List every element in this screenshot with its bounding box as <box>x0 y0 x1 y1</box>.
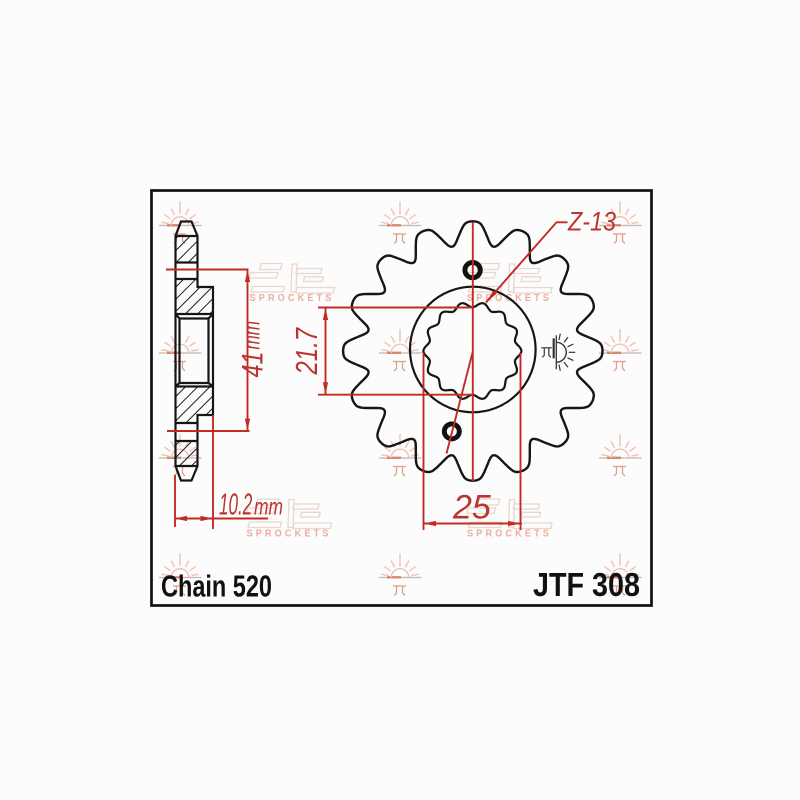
svg-text:JTF 308: JTF 308 <box>533 566 640 603</box>
svg-text:25: 25 <box>452 489 491 527</box>
svg-text:SPROCKETS: SPROCKETS <box>250 293 335 304</box>
svg-text:41: 41 <box>237 352 270 378</box>
svg-text:Chain 520: Chain 520 <box>161 569 272 604</box>
svg-text:SPROCKETS: SPROCKETS <box>467 529 552 540</box>
svg-text:21.7: 21.7 <box>289 327 324 376</box>
svg-text:SPROCKETS: SPROCKETS <box>247 529 332 540</box>
svg-text:mm: mm <box>239 321 266 350</box>
svg-text:Z-13: Z-13 <box>567 207 616 237</box>
